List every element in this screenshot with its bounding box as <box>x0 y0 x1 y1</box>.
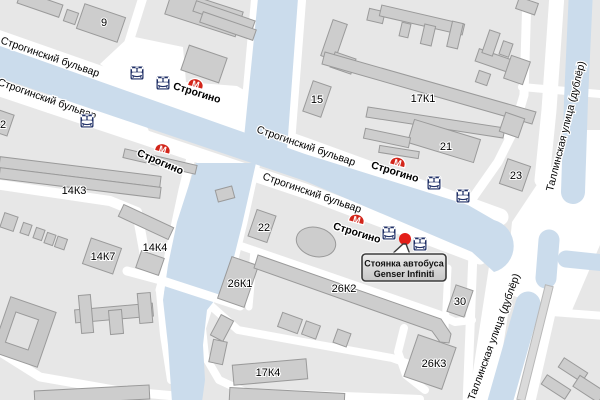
svg-text:17К1: 17К1 <box>411 93 436 105</box>
svg-text:17К4: 17К4 <box>256 367 281 379</box>
svg-text:15: 15 <box>311 94 323 106</box>
svg-text:14К4: 14К4 <box>143 242 168 254</box>
svg-text:30: 30 <box>454 296 466 308</box>
svg-text:Genser Infiniti: Genser Infiniti <box>374 269 435 279</box>
svg-text:14К3: 14К3 <box>62 185 87 197</box>
svg-text:23: 23 <box>510 170 522 182</box>
svg-text:21: 21 <box>440 141 452 153</box>
svg-text:Стоянка автобуса: Стоянка автобуса <box>364 259 444 269</box>
svg-text:2: 2 <box>0 119 6 131</box>
svg-text:22: 22 <box>258 222 270 234</box>
svg-text:9: 9 <box>101 17 107 29</box>
svg-text:26К2: 26К2 <box>332 283 357 295</box>
svg-text:26К3: 26К3 <box>422 358 447 370</box>
svg-text:14К7: 14К7 <box>91 251 116 263</box>
svg-text:26К1: 26К1 <box>228 278 253 290</box>
